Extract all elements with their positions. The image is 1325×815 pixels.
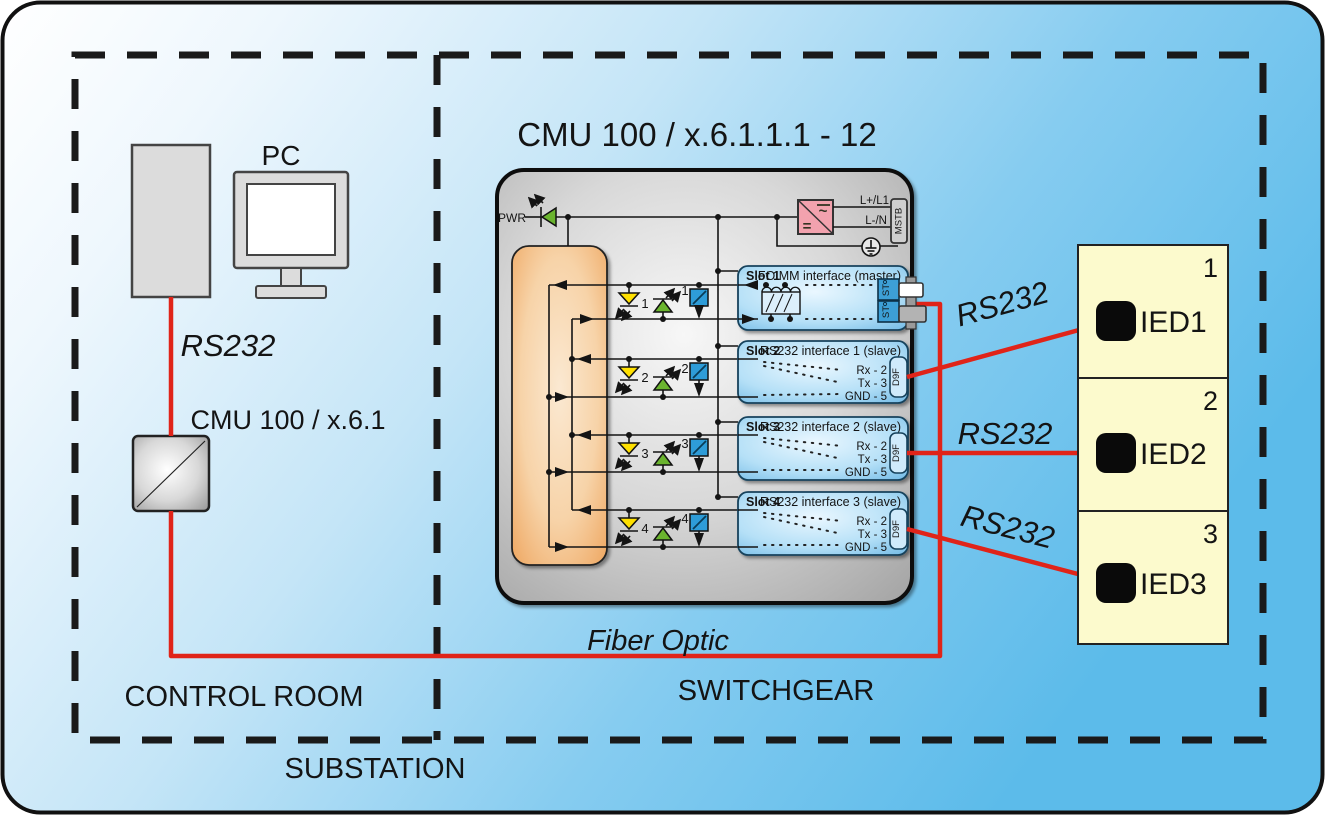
st-connector-label: ST (881, 306, 892, 318)
st-connector-bottom: ST (878, 301, 899, 322)
line-plus-label: L+/L1 (860, 195, 889, 207)
fiber-optic-label: Fiber Optic (587, 625, 729, 657)
media-converter-label: CMU 100 / x.6.1 (190, 405, 385, 435)
pc-tower (132, 145, 210, 297)
ied-label: IED2 (1140, 438, 1207, 471)
ied-2: 2 IED2 (1078, 378, 1228, 511)
pin-gnd: GND - 5 (845, 542, 887, 554)
line-neutral-label: L-/N (865, 215, 887, 227)
psu-ac-symbol: ~ (819, 203, 828, 220)
fiber-plug-white (899, 283, 923, 297)
slot-title: RS232 interface 3 (slave) (760, 495, 901, 509)
d9f-connector: D9F (890, 509, 907, 549)
control-room-label: CONTROL ROOM (125, 681, 364, 713)
monitor-base (256, 286, 326, 298)
ied-label: IED3 (1140, 568, 1207, 601)
mstb-label: MSTB (894, 208, 905, 234)
diagram-canvas: CONTROL ROOM SWITCHGEAR SUBSTATION PC RS… (0, 0, 1325, 815)
channel-number: 3 (681, 436, 688, 451)
pin-tx: Tx - 3 (858, 529, 887, 541)
ied-3-port (1096, 563, 1136, 603)
channel-number: 4 (641, 521, 648, 536)
ied-1: 1 IED1 (1078, 245, 1228, 378)
slot-4: Slot 4 RS232 interface 3 (slave) Rx - 2 … (738, 492, 908, 555)
channel-number: 1 (641, 296, 648, 311)
psu-dc-symbol: = (803, 218, 812, 235)
channel-number: 2 (641, 370, 648, 385)
d9f-connector-label: D9F (891, 444, 902, 462)
d9f-connector-label: D9F (891, 368, 902, 386)
substation-label: SUBSTATION (285, 753, 466, 785)
star-coupler-panel (512, 246, 607, 565)
cmu-device: PWR ~ = L+/L1 L-/N MSTB (497, 170, 912, 603)
switchgear-label: SWITCHGEAR (678, 675, 875, 707)
ied-1-port (1096, 301, 1136, 341)
pin-rx: Rx - 2 (856, 365, 887, 377)
pin-gnd: GND - 5 (845, 467, 887, 479)
slot-2: Slot 2 RS232 interface 1 (slave) Rx - 2 … (738, 341, 908, 403)
rs232-label-ied2: RS232 (958, 416, 1053, 451)
cmu-title: CMU 100 / x.6.1.1.1 - 12 (517, 116, 877, 153)
st-connector-label: ST (881, 284, 892, 296)
d9f-connector-label: D9F (891, 520, 902, 538)
d9f-connector: D9F (890, 357, 907, 397)
substation-diagram: CONTROL ROOM SWITCHGEAR SUBSTATION PC RS… (0, 0, 1325, 815)
monitor-stand (281, 268, 301, 286)
ground-icon (862, 238, 880, 256)
ied-label: IED1 (1140, 306, 1207, 339)
slot-title: RS232 interface 2 (slave) (760, 420, 901, 434)
d9f-connector: D9F (890, 433, 907, 473)
pin-tx: Tx - 3 (858, 454, 887, 466)
ied-stack: 1 IED1 2 IED2 3 IED3 (1078, 245, 1228, 644)
pwr-label: PWR (498, 211, 526, 225)
ied-number: 1 (1203, 253, 1218, 283)
pin-tx: Tx - 3 (858, 378, 887, 390)
channel-number: 3 (641, 446, 648, 461)
pc-label: PC (262, 140, 301, 171)
slot-title: RS232 interface 1 (slave) (760, 344, 901, 358)
ied-3: 3 IED3 (1078, 511, 1228, 644)
pin-rx: Rx - 2 (856, 516, 887, 528)
channel-number: 4 (681, 511, 688, 526)
pc-rs232-label: RS232 (181, 328, 276, 363)
pin-gnd: GND - 5 (845, 391, 887, 403)
ied-number: 3 (1203, 519, 1218, 549)
monitor-screen (247, 184, 335, 255)
slot-3: Slot 3 RS232 interface 2 (slave) Rx - 2 … (738, 417, 908, 480)
fiber-plug-gray (899, 306, 926, 322)
ied-2-port (1096, 433, 1136, 473)
channel-number: 1 (681, 283, 688, 298)
pin-rx: Rx - 2 (856, 441, 887, 453)
channel-number: 2 (681, 361, 688, 376)
slot-1: Slot 1 FO MM interface (master) (738, 266, 908, 330)
st-connector-top: ST (878, 279, 899, 300)
ied-number: 2 (1203, 386, 1218, 416)
